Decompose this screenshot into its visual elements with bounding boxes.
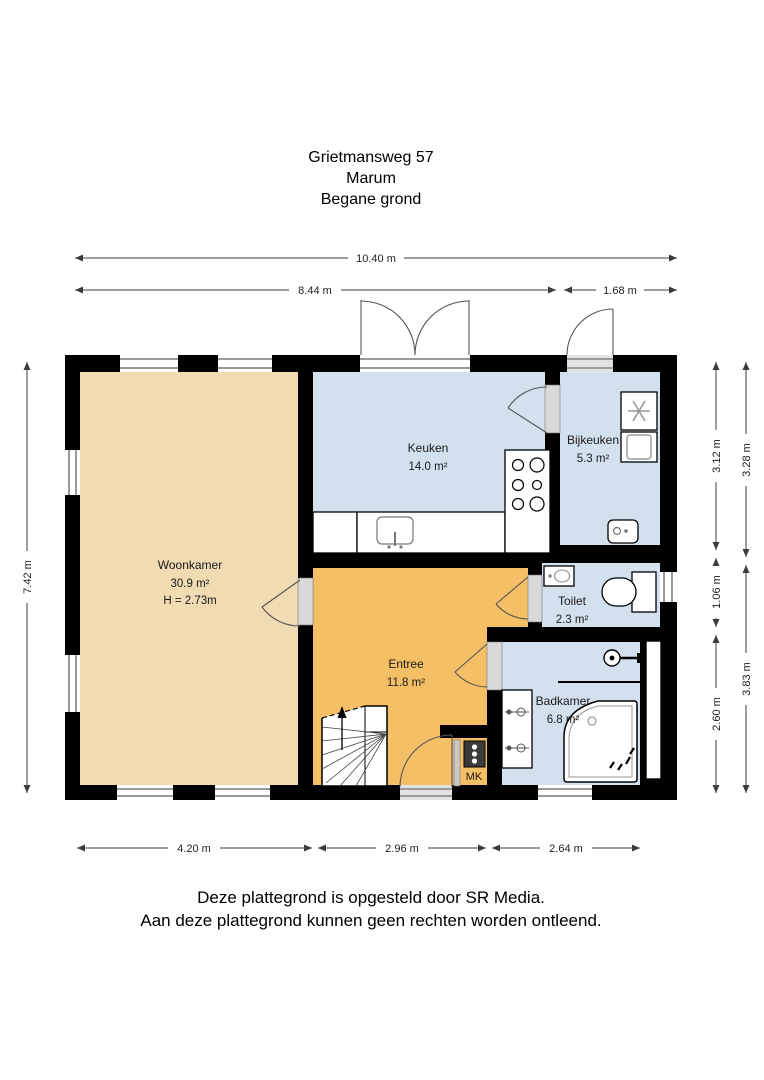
entree-label: Entree [388, 657, 424, 671]
sink-knob [399, 545, 402, 548]
woonkamer-area: 30.9 m² [171, 578, 210, 590]
boiler [608, 520, 638, 543]
badkamer-area: 6.8 m² [547, 714, 580, 726]
meter-dial [472, 744, 477, 749]
staircase [322, 706, 387, 786]
dim-label-top-right: 1.68 m [603, 285, 637, 297]
window-badkamer-bottom [538, 785, 592, 800]
mk-door [454, 740, 460, 786]
stairs-body [322, 706, 387, 786]
keuken-label: Keuken [408, 441, 449, 455]
footer-line1: Deze plattegrond is opgesteld door SR Me… [0, 886, 742, 909]
dim-label-right-outer-bottom: 3.83 m [741, 662, 753, 696]
window-top-2 [218, 355, 272, 372]
meter-dial [472, 751, 477, 756]
dim-label-right-inner-mid: 1.06 m [711, 575, 723, 609]
french-doors-keuken [360, 300, 470, 372]
dim-left-total: 7.42 m [19, 362, 35, 793]
door-bijkeuken-exterior [567, 309, 613, 372]
footer-line2: Aan deze plattegrond kunnen geen rechten… [0, 909, 742, 932]
wall-keuken-entree [313, 553, 528, 568]
mk-label: MK [466, 771, 483, 783]
window-bottom-2 [215, 785, 270, 800]
dim-label-right-outer-top: 3.28 m [741, 443, 753, 477]
boiler-dial [624, 529, 628, 533]
dim-right-inner-mid: 1.06 m [708, 558, 724, 627]
dim-label-right-inner-bottom: 2.60 m [711, 697, 723, 731]
kitchen-cabinet [313, 512, 357, 553]
dim-label-bottom-mid: 2.96 m [385, 843, 419, 855]
meter-cupboard: MK [454, 740, 485, 786]
dim-right-outer-top: 3.28 m [738, 362, 754, 557]
woonkamer-height: H = 2.73m [163, 595, 216, 607]
dim-top-total: 10.40 m [75, 251, 677, 265]
bijkeuken-label: Bijkeuken [567, 433, 619, 447]
badkamer-label: Badkamer [536, 694, 591, 708]
dim-top-left: 8.44 m [75, 283, 556, 297]
dim-label-left-total: 7.42 m [22, 560, 34, 594]
wall-mk-stub [440, 725, 487, 738]
window-badkamer-right [646, 641, 661, 779]
window-left-1 [65, 450, 80, 495]
wall-left [65, 355, 80, 800]
toilet-bowl [602, 578, 636, 606]
washing-machine [621, 392, 657, 430]
entree-area: 11.8 m² [387, 677, 425, 689]
dim-bottom-left: 4.20 m [77, 841, 312, 855]
dim-right-outer-bottom: 3.83 m [738, 565, 754, 793]
dim-label-bottom-left: 4.20 m [177, 843, 211, 855]
dryer [621, 432, 657, 462]
dim-top-right: 1.68 m [564, 283, 677, 297]
window-left-2 [65, 655, 80, 712]
woonkamer-label: Woonkamer [158, 558, 222, 572]
toilet-hand-basin [544, 566, 574, 586]
kitchen-sink [377, 517, 413, 549]
window-bottom-1 [117, 785, 173, 800]
window-toilet-right [660, 572, 677, 602]
dim-label-bottom-right: 2.64 m [549, 843, 583, 855]
floorplan-page: Grietmansweg 57 Marum Begane grond [0, 0, 764, 1080]
keuken-area: 14.0 m² [409, 461, 448, 473]
bijkeuken-area: 5.3 m² [577, 453, 610, 465]
dim-label-right-inner-top: 3.12 m [711, 439, 723, 473]
meter-dial [472, 758, 477, 763]
dim-bottom-right: 2.64 m [492, 841, 640, 855]
dim-label-top-total: 10.40 m [356, 253, 396, 265]
dim-label-top-left: 8.44 m [298, 285, 332, 297]
vanity-double-sink [502, 690, 532, 768]
plan-footer: Deze plattegrond is opgesteld door SR Me… [0, 886, 742, 932]
sink-knob [387, 545, 390, 548]
toilet-label: Toilet [558, 594, 587, 608]
dim-right-inner-bottom: 2.60 m [708, 635, 724, 793]
dim-right-inner-top: 3.12 m [708, 362, 724, 550]
wall-toilet-badkamer [502, 627, 677, 642]
window-top-1 [120, 355, 178, 372]
toilet-area: 2.3 m² [556, 614, 589, 626]
dim-bottom-mid: 2.96 m [318, 841, 486, 855]
